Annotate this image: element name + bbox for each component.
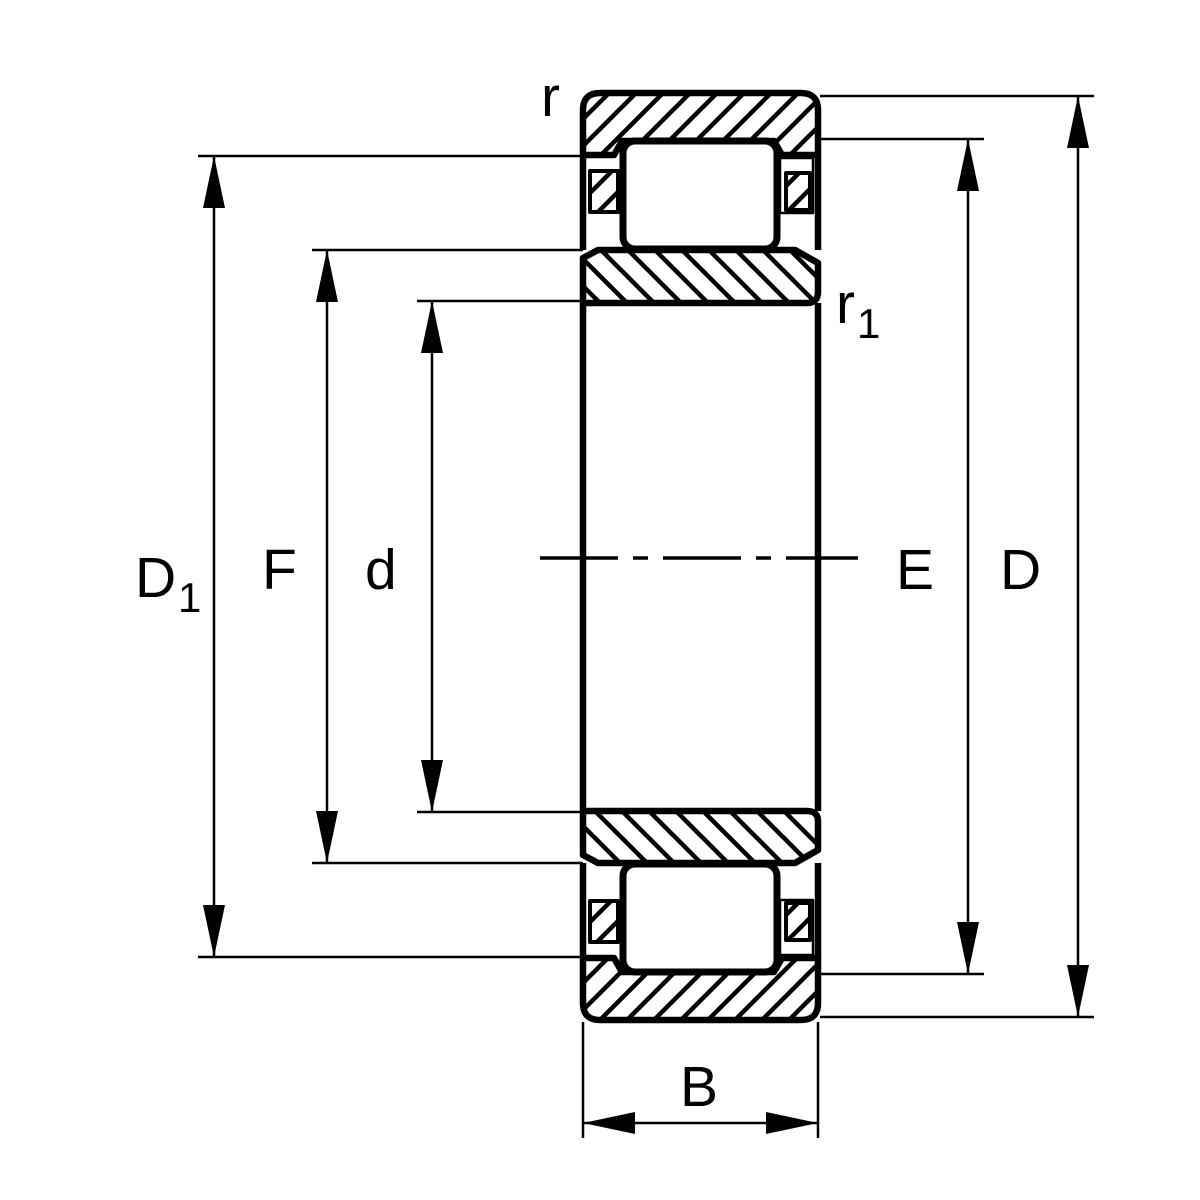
cage-bar-bottom-left [590, 901, 618, 942]
label-B: B [680, 1055, 718, 1119]
inner-ring-bottom-section [583, 811, 818, 863]
label-r: r [541, 65, 560, 129]
label-D1-sub: 1 [178, 574, 201, 621]
label-D1-base: D [135, 546, 176, 610]
bearing-cross-section-diagram: D 1 F d E D B r r 1 [0, 0, 1200, 1200]
label-D: D [1000, 538, 1041, 602]
roller-bottom [623, 864, 777, 972]
label-d: d [365, 538, 397, 602]
cage-bar-bottom-right [786, 903, 810, 940]
inner-ring-top-section [583, 250, 818, 303]
label-F: F [262, 538, 297, 602]
roller-top [623, 141, 777, 249]
label-E: E [896, 538, 934, 602]
cage-bar-top-left [590, 171, 618, 212]
label-r1-base: r [836, 272, 855, 336]
label-r1-sub: 1 [857, 300, 880, 347]
cage-bar-top-right [786, 173, 810, 210]
